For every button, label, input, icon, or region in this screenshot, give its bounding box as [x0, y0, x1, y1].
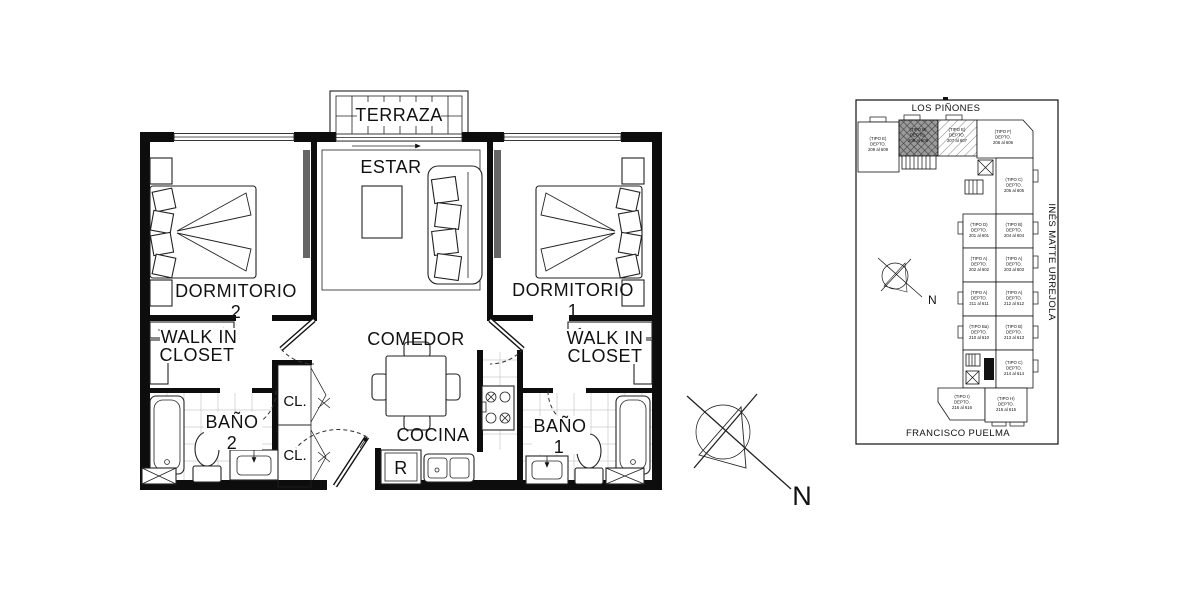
- keyplan-unit-213: (TIPO B) DEPTO. 213 al 613: [996, 316, 1033, 350]
- svg-text:(TIPO B): (TIPO B): [910, 127, 928, 132]
- keyplan-unit-208-highlighted: (TIPO B) DEPTO. 208 al 608: [899, 120, 938, 156]
- wall-hatch-bar: [303, 150, 310, 258]
- dorm2-label: DORMITORIO: [175, 281, 297, 301]
- svg-text:DEPTO.: DEPTO.: [998, 402, 1014, 407]
- hall-closets: [278, 365, 330, 487]
- svg-text:213 al 613: 213 al 613: [1004, 335, 1025, 340]
- stove-icon: [482, 386, 514, 430]
- wic-right-line2: CLOSET: [567, 346, 642, 366]
- svg-text:(TIPO E): (TIPO E): [949, 127, 967, 132]
- svg-text:(TIPO A): (TIPO A): [971, 290, 988, 295]
- cl-top-label: CL.: [283, 393, 306, 410]
- terraza-balcony-icon: TERRAZA: [330, 91, 468, 141]
- svg-text:207 al 607: 207 al 607: [947, 138, 968, 143]
- svg-text:202 al 602: 202 al 602: [969, 267, 990, 272]
- svg-text:(TIPO E): (TIPO E): [870, 136, 888, 141]
- svg-text:(TIPO B): (TIPO B): [1006, 222, 1024, 227]
- svg-text:210 al 610: 210 al 610: [969, 335, 990, 340]
- sink-icon: [424, 454, 474, 482]
- svg-text:DEPTO.: DEPTO.: [1006, 183, 1022, 188]
- svg-text:DEPTO.: DEPTO.: [870, 142, 886, 147]
- keyplan-unit-205: (TIPO C) DEPTO. 205 al 605: [996, 158, 1033, 214]
- svg-text:(TIPO Ba): (TIPO Ba): [969, 324, 989, 329]
- svg-text:DEPTO.: DEPTO.: [971, 262, 987, 267]
- north-label: N: [792, 481, 812, 511]
- keyplan-unit-209: (TIPO E) DEPTO. 209 al 609: [858, 122, 899, 172]
- keyplan-unit-202: (TIPO A) DEPTO. 202 al 602: [963, 248, 996, 282]
- svg-text:(TIPO C): (TIPO C): [1005, 360, 1023, 365]
- wall-hatch-bar: [494, 150, 501, 258]
- svg-text:(TIPO C): (TIPO C): [1005, 177, 1023, 182]
- keyplan-unit-212: (TIPO A) DEPTO. 212 al 612: [996, 282, 1033, 316]
- svg-text:(TIPO B): (TIPO B): [1006, 324, 1024, 329]
- svg-text:DEPTO.: DEPTO.: [954, 400, 970, 405]
- dorm1-label: DORMITORIO: [512, 280, 634, 300]
- svg-text:214 al 614: 214 al 614: [1004, 371, 1025, 376]
- shaft-x-icon: [606, 468, 644, 484]
- sliding-door-icon: [336, 134, 462, 146]
- svg-text:209 al 609: 209 al 609: [868, 147, 889, 152]
- wic-left-line2: CLOSET: [159, 345, 234, 365]
- svg-text:DEPTO.: DEPTO.: [1006, 228, 1022, 233]
- cl-bottom-label: CL.: [283, 447, 306, 464]
- svg-text:203 al 603: 203 al 603: [1004, 267, 1025, 272]
- svg-text:DEPTO.: DEPTO.: [1006, 330, 1022, 335]
- keyplan-unit-214: (TIPO C) DEPTO. 214 al 614: [996, 350, 1033, 388]
- dorm1-number: 1: [568, 301, 579, 321]
- svg-text:(TIPO H): (TIPO H): [997, 396, 1015, 401]
- sofa-icon: [428, 166, 482, 284]
- svg-text:DEPTO.: DEPTO.: [949, 133, 965, 138]
- door-dorm2: [281, 320, 314, 364]
- shaft-x-icon: [142, 468, 176, 484]
- wic-right-line1: WALK IN: [567, 328, 644, 348]
- drawing-canvas: TERRAZA: [0, 0, 1200, 600]
- comedor-label: COMEDOR: [367, 329, 465, 349]
- svg-text:(TIPO I): (TIPO I): [954, 394, 970, 399]
- svg-text:(TIPO A): (TIPO A): [1006, 256, 1023, 261]
- keyplan-unit-215: (TIPO H) DEPTO. 215 al 615: [985, 388, 1027, 422]
- svg-text:211 al 611: 211 al 611: [969, 301, 989, 306]
- svg-text:DEPTO.: DEPTO.: [995, 135, 1011, 140]
- bano1-number: 1: [554, 437, 565, 457]
- estar-label: ESTAR: [360, 157, 421, 177]
- cocina-label: COCINA: [396, 425, 469, 445]
- floorplan-page: TERRAZA: [0, 0, 1200, 600]
- svg-text:215 al 615: 215 al 615: [996, 407, 1017, 412]
- keyplan-lower-core-icons: [963, 350, 996, 388]
- north-compass: N: [687, 394, 812, 511]
- coffee-table-icon: [362, 186, 402, 238]
- bano1-label: BAÑO: [533, 415, 586, 436]
- svg-text:DEPTO.: DEPTO.: [910, 133, 926, 138]
- svg-text:(TIPO A): (TIPO A): [1006, 290, 1023, 295]
- terraza-label: TERRAZA: [355, 105, 443, 125]
- keyplan-unit-207: (TIPO E) DEPTO. 207 al 607: [938, 120, 977, 156]
- svg-text:212 al 612: 212 al 612: [1004, 301, 1025, 306]
- svg-text:DEPTO.: DEPTO.: [971, 296, 987, 301]
- keyplan-unit-210: (TIPO Ba) DEPTO. 210 al 610: [963, 316, 996, 350]
- svg-text:204 al 604: 204 al 604: [1004, 233, 1025, 238]
- street-ines-matte-urrejola: INÉS MATTE URREJOLA: [1046, 203, 1057, 320]
- svg-text:208 al 608: 208 al 608: [908, 138, 929, 143]
- bano2-number: 2: [227, 433, 238, 453]
- svg-text:DEPTO.: DEPTO.: [971, 330, 987, 335]
- bathtub-icon: [616, 396, 650, 474]
- dorm2-number: 2: [231, 302, 242, 322]
- svg-text:DEPTO.: DEPTO.: [1006, 296, 1022, 301]
- svg-text:(TIPO D): (TIPO D): [970, 222, 988, 227]
- svg-text:DEPTO.: DEPTO.: [1006, 262, 1022, 267]
- street-los-pinones: LOS PIÑONES: [912, 103, 981, 114]
- vanity-sink-icon: [230, 450, 278, 480]
- refrigerator-icon: R: [381, 450, 421, 484]
- svg-text:216 al 616: 216 al 616: [952, 405, 973, 410]
- keyplan-north-label: N: [928, 293, 937, 307]
- floor-plan: TERRAZA: [140, 91, 662, 490]
- street-francisco-puelma: FRANCISCO PUELMA: [906, 428, 1010, 439]
- bathtub-icon: [150, 396, 184, 474]
- svg-text:(TIPO F): (TIPO F): [995, 129, 1012, 134]
- keyplan-unit-203: (TIPO A) DEPTO. 203 al 603: [996, 248, 1033, 282]
- wic-left-line1: WALK IN: [161, 327, 238, 347]
- svg-text:206 al 606: 206 al 606: [993, 140, 1014, 145]
- svg-text:(TIPO A): (TIPO A): [971, 256, 988, 261]
- bano2-label: BAÑO: [205, 411, 258, 432]
- dining-table-icon: [372, 342, 460, 430]
- keyplan-unit-206: (TIPO F) DEPTO. 206 al 606: [977, 120, 1033, 158]
- key-plan: LOS PIÑONES FRANCISCO PUELMA INÉS MATTE …: [856, 97, 1058, 444]
- svg-text:205 al 605: 205 al 605: [1004, 188, 1025, 193]
- vanity-sink-icon: [526, 456, 568, 484]
- keyplan-unit-211: (TIPO A) DEPTO. 211 al 611: [963, 282, 996, 316]
- svg-text:DEPTO.: DEPTO.: [1006, 366, 1022, 371]
- keyplan-unit-204: (TIPO B) DEPTO. 204 al 604: [996, 214, 1033, 248]
- keyplan-unit-201: (TIPO D) DEPTO. 201 al 601: [963, 214, 996, 248]
- svg-text:201 al 601: 201 al 601: [969, 233, 990, 238]
- refrigerator-label: R: [394, 458, 408, 478]
- svg-text:DEPTO.: DEPTO.: [971, 228, 987, 233]
